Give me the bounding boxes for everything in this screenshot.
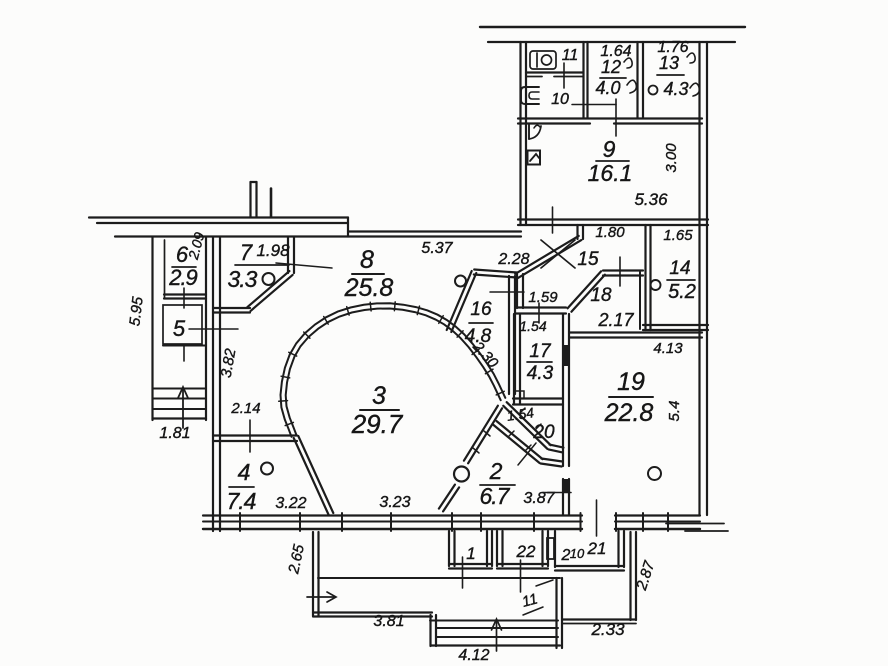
svg-text:1.76: 1.76 bbox=[657, 39, 688, 56]
svg-text:22: 22 bbox=[516, 542, 536, 561]
svg-text:7.4: 7.4 bbox=[227, 488, 256, 514]
svg-text:2: 2 bbox=[489, 458, 503, 484]
svg-text:1.54: 1.54 bbox=[519, 318, 546, 334]
svg-text:1.98: 1.98 bbox=[256, 241, 290, 260]
svg-text:3: 3 bbox=[372, 382, 386, 410]
svg-text:5.37: 5.37 bbox=[421, 240, 453, 257]
svg-text:29.7: 29.7 bbox=[351, 409, 404, 439]
svg-text:4: 4 bbox=[238, 459, 251, 485]
svg-text:1.59: 1.59 bbox=[528, 289, 558, 306]
svg-text:10: 10 bbox=[570, 546, 585, 561]
svg-text:18: 18 bbox=[590, 285, 612, 306]
svg-text:5.95: 5.95 bbox=[126, 295, 147, 327]
svg-text:11: 11 bbox=[562, 47, 579, 64]
svg-text:13: 13 bbox=[659, 53, 679, 73]
svg-text:22.8: 22.8 bbox=[604, 399, 654, 427]
svg-text:4.3: 4.3 bbox=[527, 363, 554, 384]
svg-text:3.81: 3.81 bbox=[373, 613, 404, 630]
svg-text:10: 10 bbox=[551, 91, 569, 108]
svg-text:5.36: 5.36 bbox=[634, 190, 668, 209]
svg-text:4.13: 4.13 bbox=[653, 340, 683, 357]
svg-text:1.64: 1.64 bbox=[600, 43, 631, 60]
svg-text:4.12: 4.12 bbox=[458, 647, 489, 664]
svg-text:19: 19 bbox=[617, 368, 645, 396]
svg-text:2.14: 2.14 bbox=[230, 400, 260, 417]
svg-text:4.3: 4.3 bbox=[663, 79, 688, 99]
svg-text:16: 16 bbox=[470, 299, 492, 320]
svg-text:2.17: 2.17 bbox=[597, 310, 634, 330]
svg-text:2.28: 2.28 bbox=[497, 251, 529, 268]
svg-text:25.8: 25.8 bbox=[344, 274, 394, 302]
svg-text:16.1: 16.1 bbox=[588, 160, 633, 186]
svg-text:8: 8 bbox=[360, 246, 374, 274]
svg-text:20: 20 bbox=[532, 422, 555, 443]
svg-text:12: 12 bbox=[601, 57, 621, 77]
svg-text:17: 17 bbox=[529, 341, 552, 362]
svg-text:1.80: 1.80 bbox=[595, 224, 625, 241]
svg-text:1.81: 1.81 bbox=[159, 425, 190, 442]
svg-text:3.00: 3.00 bbox=[663, 143, 680, 173]
svg-text:14: 14 bbox=[669, 258, 690, 279]
svg-text:6.7: 6.7 bbox=[480, 483, 511, 509]
svg-text:5: 5 bbox=[173, 316, 186, 341]
svg-text:4.0: 4.0 bbox=[595, 78, 620, 98]
svg-text:3.3: 3.3 bbox=[228, 266, 258, 292]
svg-text:3.23: 3.23 bbox=[379, 494, 410, 511]
svg-text:3.22: 3.22 bbox=[275, 495, 306, 512]
svg-text:9: 9 bbox=[603, 136, 616, 162]
svg-text:5.2: 5.2 bbox=[668, 281, 696, 303]
svg-text:1.65: 1.65 bbox=[663, 227, 693, 244]
svg-text:21: 21 bbox=[587, 539, 607, 558]
svg-text:2.33: 2.33 bbox=[590, 620, 625, 639]
svg-text:7: 7 bbox=[240, 240, 253, 265]
svg-text:1: 1 bbox=[466, 544, 475, 563]
svg-text:15: 15 bbox=[577, 249, 599, 270]
svg-text:5.4: 5.4 bbox=[666, 401, 683, 422]
svg-text:2.9: 2.9 bbox=[168, 265, 197, 290]
